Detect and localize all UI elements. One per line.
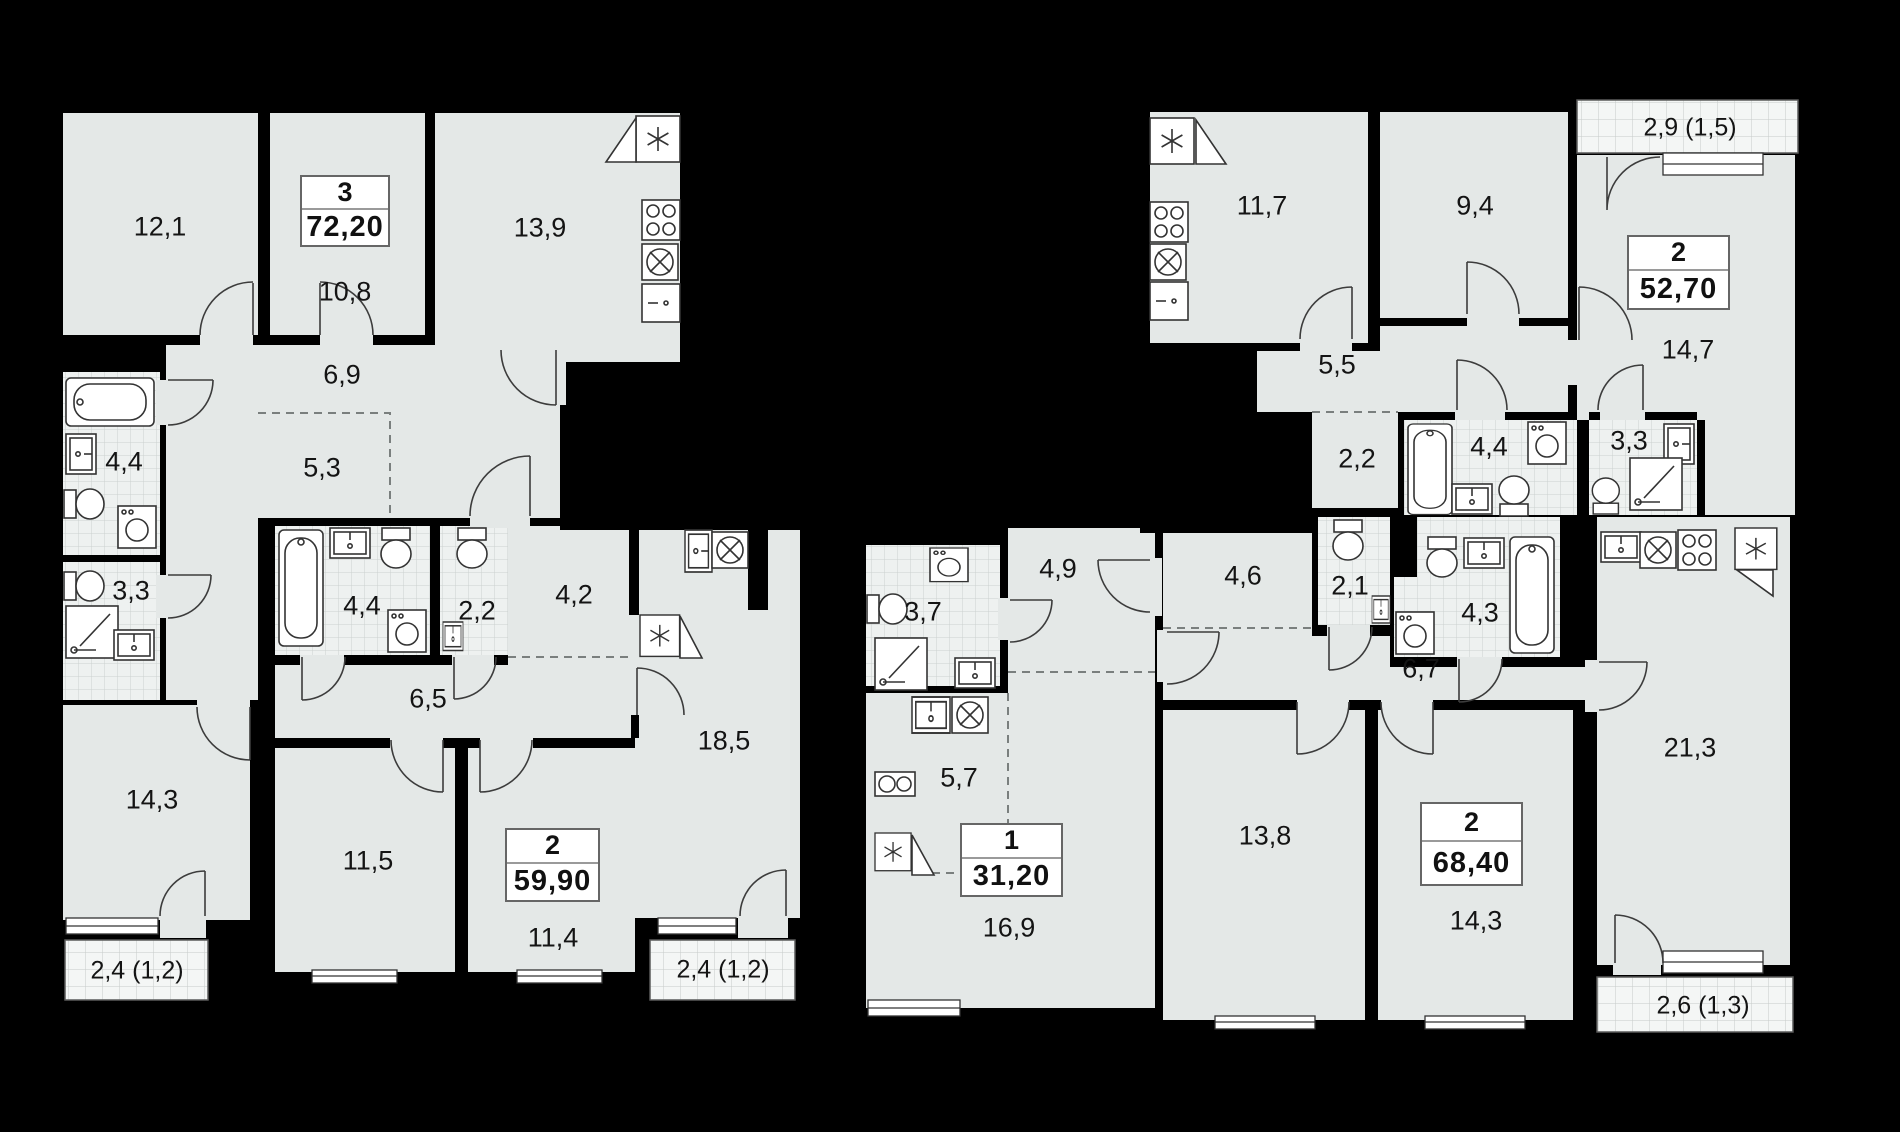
hob-icon bbox=[875, 772, 915, 796]
bathtub-icon bbox=[1510, 537, 1554, 653]
washer-icon bbox=[930, 548, 968, 582]
shower-icon bbox=[66, 606, 118, 658]
apartment-total-area: 72,20 bbox=[302, 210, 388, 245]
washbasin-icon bbox=[1601, 532, 1641, 562]
toilet-icon bbox=[64, 489, 104, 519]
washbasin-icon bbox=[114, 630, 154, 660]
apartment-total-area: 59,90 bbox=[507, 864, 598, 901]
apartment-info-box: 2 52,70 bbox=[1627, 235, 1730, 310]
balcony-label: 2,4 (1,2) bbox=[676, 956, 769, 985]
toilet-icon bbox=[867, 594, 907, 624]
kitchen-sink-icon bbox=[642, 244, 678, 280]
window-icon bbox=[1215, 1016, 1315, 1029]
balcony-label: 2,9 (1,5) bbox=[1643, 114, 1736, 143]
stove-icon bbox=[642, 200, 680, 240]
washbasin-icon bbox=[1452, 484, 1492, 514]
washbasin-icon bbox=[443, 622, 463, 651]
apartment-info-box: 2 68,40 bbox=[1420, 802, 1523, 886]
bathtub-icon bbox=[1408, 424, 1452, 514]
apartment-rooms-count: 2 bbox=[1422, 804, 1521, 842]
apartment-rooms-count: 3 bbox=[302, 177, 388, 210]
apartment-total-area: 31,20 bbox=[962, 859, 1061, 896]
washer-icon bbox=[388, 610, 426, 652]
toilet-icon bbox=[1333, 520, 1363, 560]
toilet-icon bbox=[1592, 478, 1619, 514]
washbasin-icon bbox=[330, 528, 370, 558]
stove-icon bbox=[1678, 530, 1716, 570]
toilet-icon bbox=[1427, 537, 1457, 577]
washer-icon bbox=[1528, 422, 1566, 464]
window-icon bbox=[517, 970, 602, 983]
apartment-info-box: 3 72,20 bbox=[300, 175, 390, 247]
bathtub-icon bbox=[279, 530, 323, 646]
kitchen-sink-icon bbox=[1150, 244, 1186, 280]
window-icon bbox=[1663, 153, 1763, 175]
washbasin-icon bbox=[66, 434, 96, 474]
cabinet-icon bbox=[1150, 282, 1188, 320]
window-icon bbox=[1663, 951, 1763, 973]
apartment-rooms-count: 1 bbox=[962, 825, 1061, 859]
washer-icon bbox=[118, 506, 156, 548]
washbasin-icon bbox=[912, 697, 950, 733]
balcony-label: 2,4 (1,2) bbox=[90, 957, 183, 986]
window-icon bbox=[868, 1000, 960, 1016]
apartment-rooms-count: 2 bbox=[507, 830, 598, 864]
window-icon bbox=[1425, 1016, 1525, 1029]
apartment-total-area: 52,70 bbox=[1629, 271, 1728, 308]
cabinet-icon bbox=[642, 284, 680, 322]
toilet-icon bbox=[381, 528, 411, 568]
washbasin-icon bbox=[1372, 596, 1390, 623]
balcony-label: 2,6 (1,3) bbox=[1656, 992, 1749, 1021]
kitchen-sink-icon bbox=[952, 697, 988, 733]
toilet-icon bbox=[457, 528, 487, 568]
window-icon bbox=[312, 970, 397, 983]
washer-icon bbox=[1396, 612, 1434, 654]
kitchen-sink-icon bbox=[1640, 532, 1676, 568]
washbasin-icon bbox=[1464, 538, 1504, 568]
floor-plan: 12,1 10,8 13,9 6,9 5,3 4,4 3,3 14,3 2,4 … bbox=[0, 0, 1900, 1132]
stove-icon bbox=[1150, 202, 1188, 242]
apartment-info-box: 1 31,20 bbox=[960, 823, 1063, 897]
shower-icon bbox=[875, 638, 927, 690]
window-icon bbox=[66, 918, 158, 934]
washbasin-icon bbox=[955, 658, 995, 688]
apartment-total-area: 68,40 bbox=[1422, 842, 1521, 884]
floor-plan-drawing bbox=[0, 0, 1900, 1132]
apartment-info-box: 2 59,90 bbox=[505, 828, 600, 902]
washbasin-icon bbox=[685, 530, 712, 572]
toilet-icon bbox=[1499, 476, 1529, 516]
kitchen-sink-icon bbox=[712, 532, 748, 568]
apartment-rooms-count: 2 bbox=[1629, 237, 1728, 271]
shower-icon bbox=[1630, 458, 1682, 510]
window-icon bbox=[658, 918, 736, 934]
bathtub-icon bbox=[66, 378, 154, 426]
toilet-icon bbox=[64, 571, 104, 601]
